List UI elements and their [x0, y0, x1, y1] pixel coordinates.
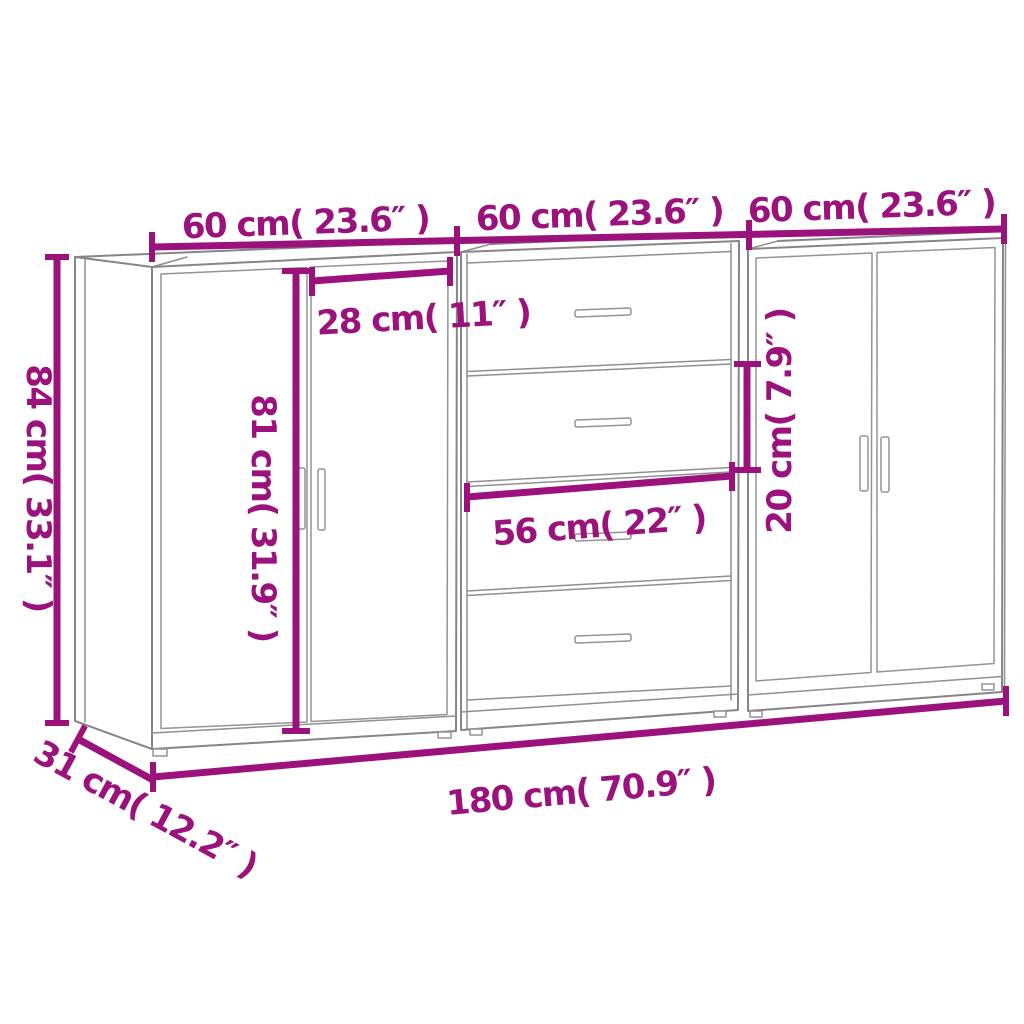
- dim-label-cabinet2-width: 60 cm( 23.6″ ): [475, 191, 724, 240]
- dim-label-overall-width: 180 cm( 70.9″ ): [445, 760, 717, 824]
- right-cabinet-right-door: [877, 248, 995, 673]
- dim-label-depth: 31 cm( 12.2″ ): [27, 733, 264, 886]
- left-cabinet-left-door: [161, 268, 307, 729]
- dim-label-drawer-height: 20 cm( 7.9″ ): [760, 308, 800, 533]
- drawer-handle: [575, 634, 631, 643]
- cabinet-foot: [470, 729, 482, 735]
- cabinet-foot: [982, 684, 994, 690]
- product-dimension-image: 60 cm( 23.6″ ) 60 cm( 23.6″ ) 60 cm( 23.…: [0, 0, 1024, 1024]
- right-door-handle: [318, 469, 325, 530]
- furniture-dimension-diagram: 60 cm( 23.6″ ) 60 cm( 23.6″ ) 60 cm( 23.…: [0, 0, 1024, 1024]
- drawer-handle: [575, 418, 631, 427]
- dim-label-door-height: 81 cm( 31.9″ ): [243, 394, 283, 642]
- cabinet-foot: [438, 732, 451, 738]
- cabinet-foot: [153, 749, 167, 756]
- dim-label-overall-height: 84 cm( 33.1″ ): [18, 364, 58, 612]
- right-door-handle: [881, 437, 889, 492]
- cabinet-foot: [750, 711, 762, 717]
- left-door-handle: [860, 436, 868, 491]
- drawer-handle: [575, 308, 631, 317]
- cabinet-foot: [714, 711, 726, 717]
- dim-label-cabinet3-width: 60 cm( 23.6″ ): [747, 183, 996, 232]
- left-cabinet-side-panel: [75, 257, 152, 749]
